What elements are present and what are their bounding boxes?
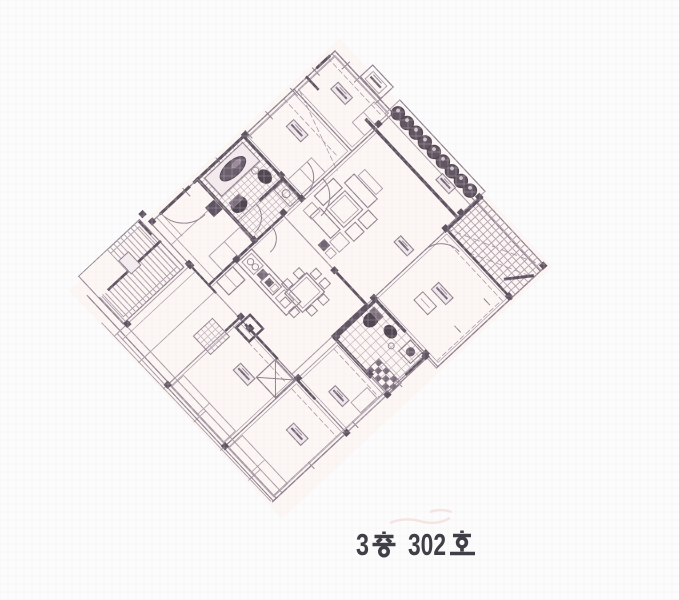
svg-text:302: 302 bbox=[408, 527, 446, 562]
svg-text:3: 3 bbox=[356, 527, 369, 562]
